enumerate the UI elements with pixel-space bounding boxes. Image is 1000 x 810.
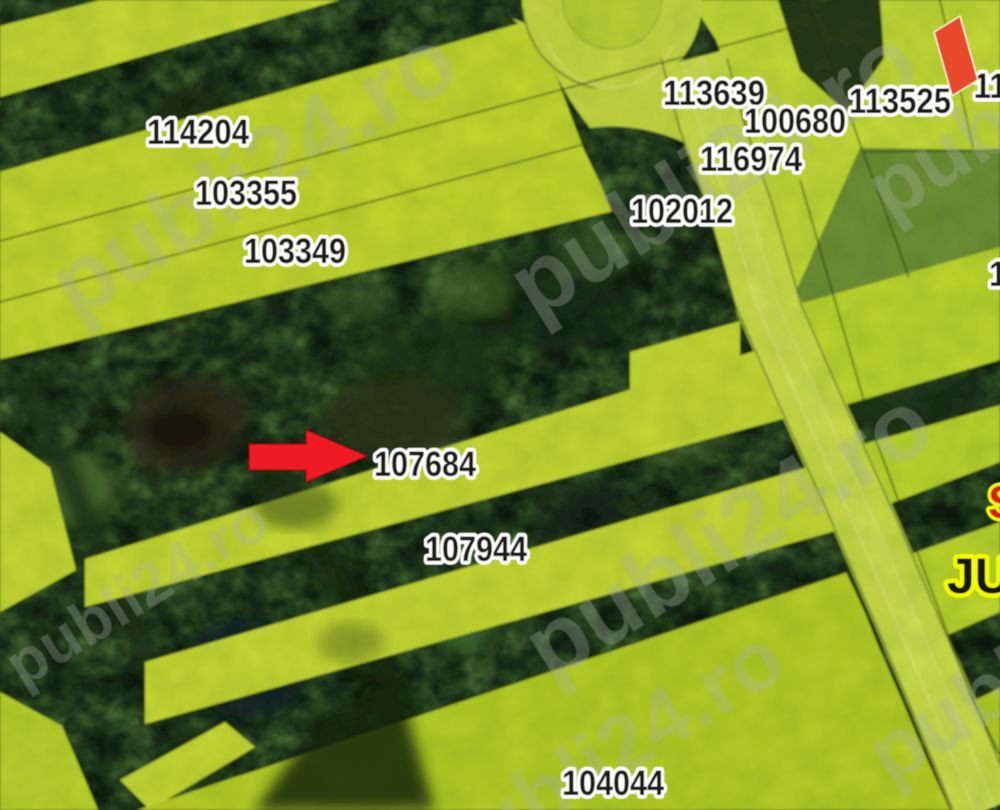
svg-text:113525: 113525 <box>849 82 951 121</box>
svg-text:100680: 100680 <box>744 102 846 141</box>
svg-text:114204: 114204 <box>147 113 249 152</box>
svg-text:102012: 102012 <box>631 192 733 231</box>
svg-text:116974: 116974 <box>700 140 802 179</box>
svg-text:113: 113 <box>974 67 1000 106</box>
svg-text:11: 11 <box>989 255 1000 294</box>
svg-text:103355: 103355 <box>195 174 297 213</box>
svg-text:103349: 103349 <box>244 232 346 271</box>
svg-text:107944: 107944 <box>425 530 527 569</box>
svg-text:107684: 107684 <box>374 445 476 484</box>
svg-text:JUD: JUD <box>947 548 1000 604</box>
svg-text:S: S <box>988 476 1000 528</box>
svg-text:104044: 104044 <box>562 764 664 803</box>
